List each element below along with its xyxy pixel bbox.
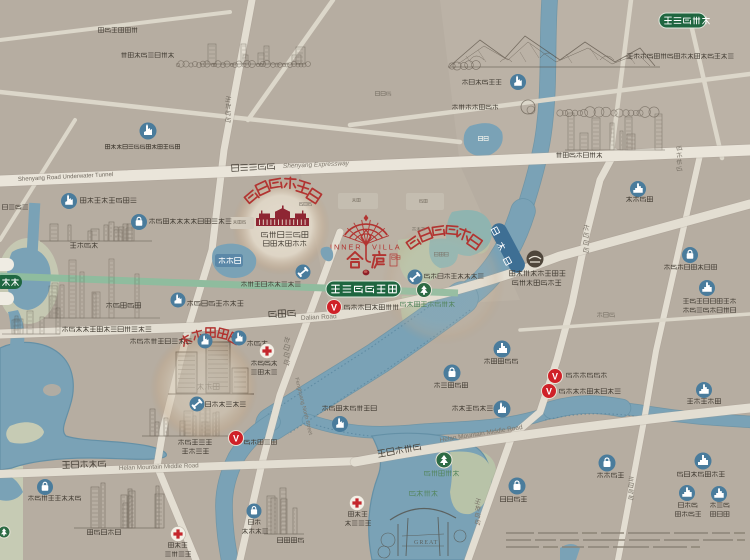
svg-text:V: V — [331, 302, 337, 312]
svg-text:V: V — [546, 386, 552, 396]
svg-text:V: V — [552, 371, 558, 381]
svg-text:V: V — [233, 433, 239, 443]
svg-text:INNER: INNER — [330, 243, 363, 252]
svg-text:GREAT: GREAT — [414, 540, 438, 546]
svg-text:VILLA: VILLA — [372, 243, 402, 252]
